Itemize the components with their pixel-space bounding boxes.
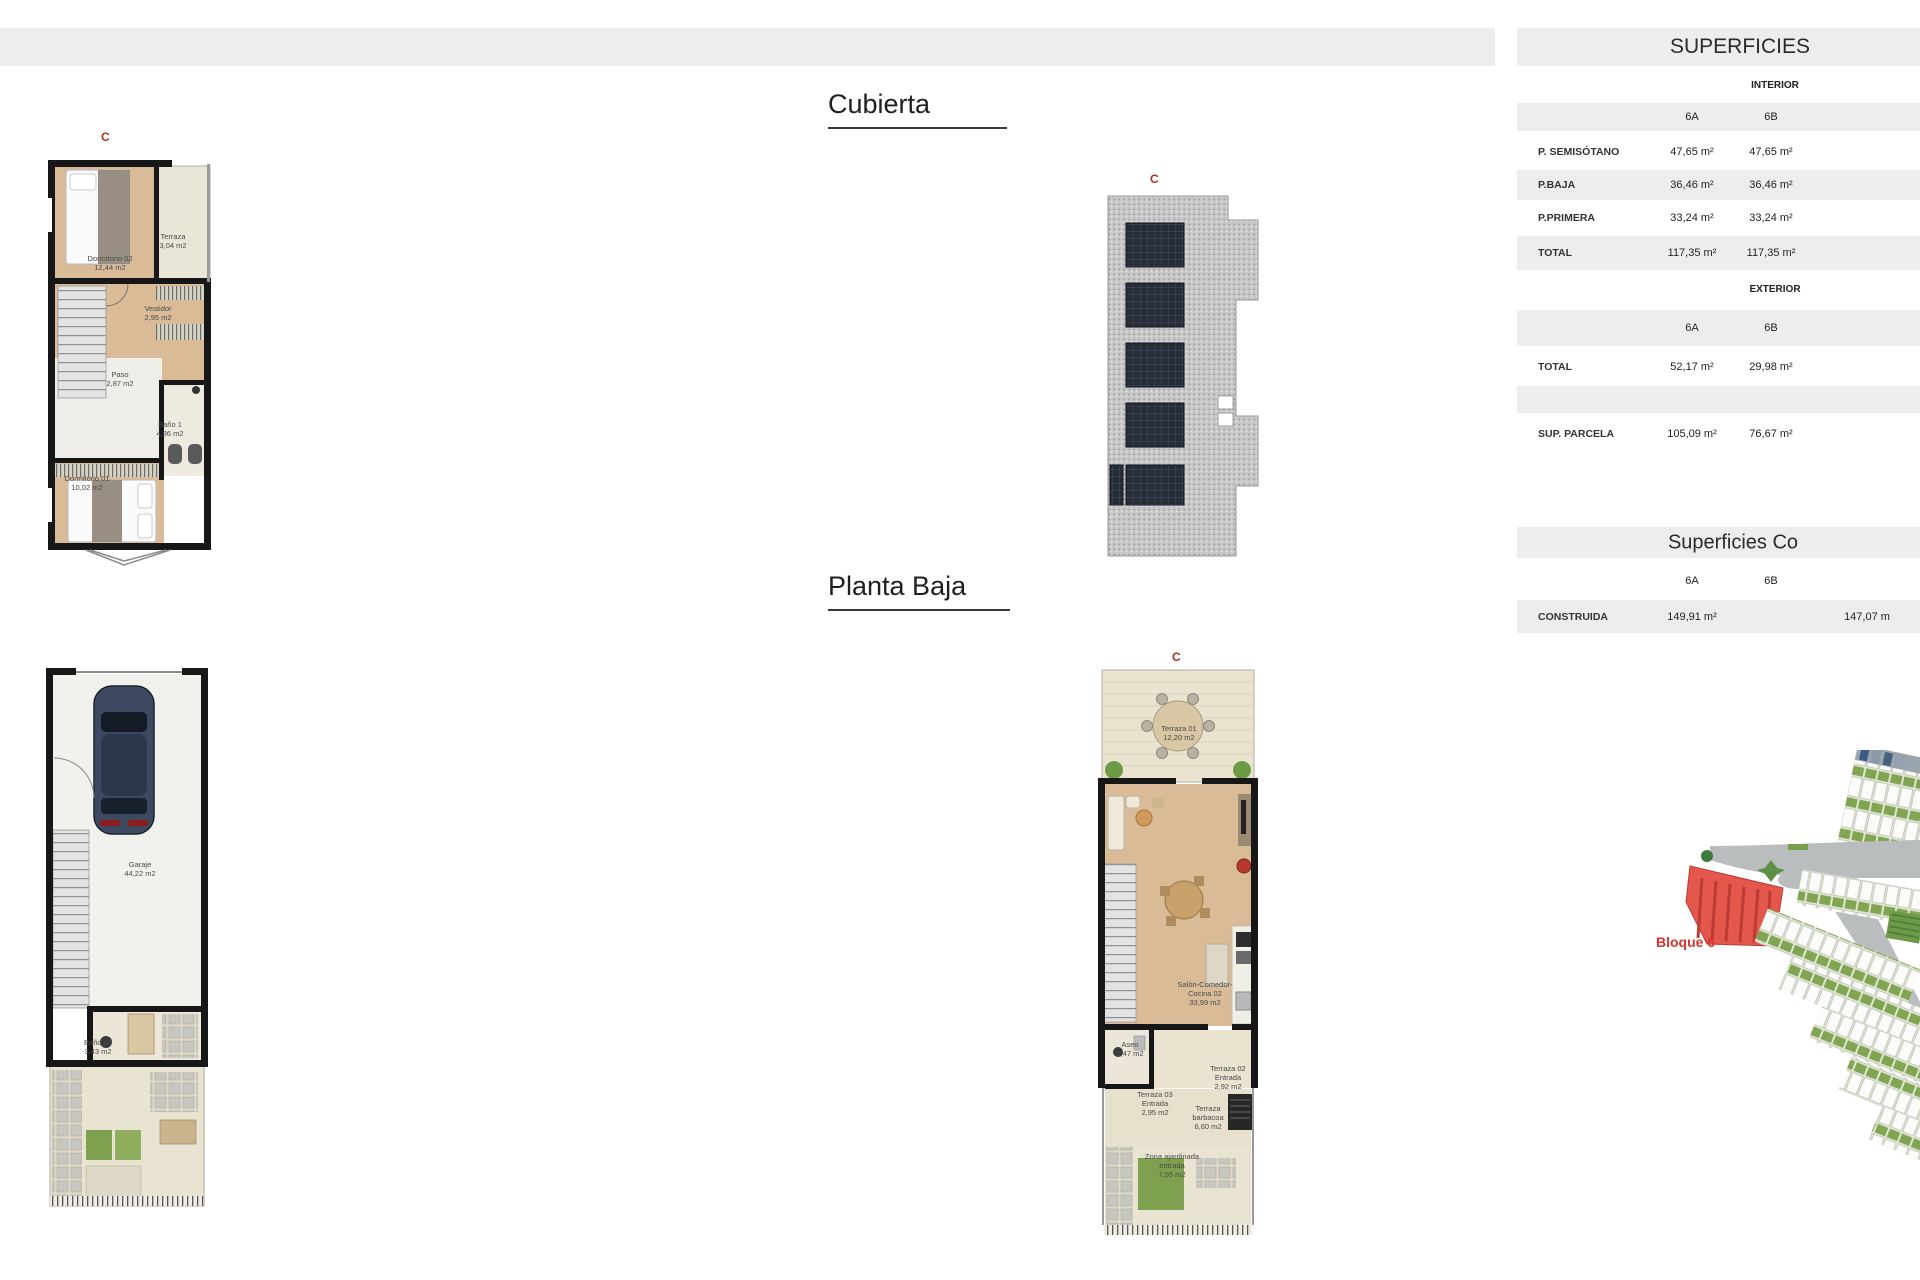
- grass-patch: [115, 1130, 141, 1160]
- col-6a: 6A: [1647, 322, 1737, 334]
- table-row: P.BAJA 36,46 m² 36,46 m²: [1517, 170, 1920, 200]
- interior-columns-row: 6A 6B: [1517, 103, 1920, 131]
- stairs: [1104, 864, 1136, 1022]
- garden-tiles: [1105, 1147, 1133, 1225]
- garage-door: [76, 671, 182, 673]
- window: [47, 488, 52, 522]
- room-label-dormitorio01: Dormitorio 0110,02 m2: [55, 474, 119, 492]
- top-band: [0, 28, 1495, 66]
- garden-paving: [1196, 1158, 1236, 1188]
- terraza-floor: [154, 166, 210, 280]
- table-row: P.PRIMERA 33,24 m² 33,24 m²: [1517, 203, 1920, 233]
- room-label-zona-ajardinada: Zona ajardinada entrada7,55 m2: [1142, 1152, 1202, 1179]
- room-label-terraza02: Terraza 02 Entrada2,92 m2: [1204, 1064, 1252, 1091]
- garden-tiles: [52, 1070, 82, 1202]
- room-label-salon: Salón-Comedor-Cocina 0233,99 m2: [1174, 980, 1236, 1007]
- garden-furniture: [160, 1120, 196, 1144]
- room-label-vestidor: Vestidor2,95 m2: [134, 304, 182, 322]
- title-planta-baja: Planta Baja: [828, 572, 1010, 611]
- col-6b: 6B: [1726, 575, 1816, 587]
- bbq: [1228, 1094, 1252, 1130]
- unit-c-marker: C: [101, 130, 110, 144]
- col-6b: 6B: [1726, 322, 1816, 334]
- unit-c-marker: C: [1172, 650, 1181, 664]
- exterior-columns-row: 6A 6B: [1517, 310, 1920, 346]
- stairs: [53, 830, 89, 1008]
- room-label-barbacoa: Terraza barbacoa6,60 m2: [1188, 1104, 1228, 1131]
- construidas-title: Superficies Co: [1648, 531, 1818, 554]
- plan-cubierta: C: [1098, 168, 1270, 570]
- col-6a: 6A: [1647, 111, 1737, 123]
- housing-cluster-lower: [1755, 908, 1920, 1205]
- garden-border: [1102, 1088, 1104, 1225]
- room-label-terraza01: Terraza 0112,20 m2: [1149, 724, 1209, 742]
- garden-paving: [150, 1072, 198, 1112]
- room-label-aseo: Aseo2,47 m2: [1108, 1040, 1152, 1058]
- bed-dormitorio02: [66, 170, 130, 264]
- table-row-empty: [1517, 386, 1920, 413]
- table-row: SUP. PARCELA 105,09 m² 76,67 m²: [1517, 417, 1920, 450]
- room-label-bano1: Baño 14,86 m2: [147, 420, 193, 438]
- wardrobe: [156, 286, 206, 300]
- plant: [1233, 761, 1251, 779]
- exterior-header: EXTERIOR: [1730, 284, 1820, 295]
- plan-sheet: { "titles": { "cubierta": "Cubierta", "p…: [0, 0, 1920, 1280]
- unit-c-marker: C: [1150, 172, 1159, 186]
- room-label-dormitorio02: Dormitorio 0212,44 m2: [74, 254, 146, 272]
- grass-patch: [86, 1130, 112, 1160]
- table-row: TOTAL 52,17 m² 29,98 m²: [1517, 351, 1920, 382]
- green-strip: [1788, 844, 1808, 850]
- plan-semisotano-drawing: [42, 662, 218, 1214]
- superficies-title-bar: SUPERFICIES: [1517, 28, 1920, 66]
- garden-border: [1252, 1088, 1254, 1225]
- plant: [1105, 761, 1123, 779]
- construidas-title-bar: Superficies Co: [1517, 527, 1920, 558]
- appliance: [1237, 859, 1251, 873]
- room-label-paso: Paso2,87 m2: [94, 370, 146, 388]
- room-label-garaje: Garaje44,22 m2: [108, 860, 172, 878]
- table-row: TOTAL 117,35 m² 117,35 m²: [1517, 236, 1920, 270]
- fence: [1104, 1225, 1252, 1235]
- table-row: P. SEMISÓTANO 47,65 m² 47,65 m²: [1517, 137, 1920, 167]
- car: [94, 686, 154, 834]
- plan-planta-primera: C: [44, 128, 220, 568]
- window: [47, 198, 52, 232]
- kitchen-counter: [1232, 926, 1254, 1024]
- col-6a: 6A: [1647, 575, 1737, 587]
- site-plan-drawing: [1650, 750, 1920, 1245]
- room-label-terraza: Terraza3,04 m2: [150, 232, 196, 250]
- terraza-rail: [207, 164, 210, 282]
- site-plan: Bloque 6: [1650, 750, 1920, 1245]
- plan-planta-primera-drawing: [44, 128, 220, 568]
- bloque6-label: Bloque 6: [1656, 934, 1715, 950]
- wardrobe: [156, 324, 206, 340]
- plan-cubierta-drawing: [1098, 168, 1270, 570]
- superficies-title: SUPERFICIES: [1660, 35, 1820, 59]
- interior-header: INTERIOR: [1730, 80, 1820, 91]
- room-label-bano01: Baño 013,43 m2: [70, 1038, 126, 1056]
- title-cubierta: Cubierta: [828, 90, 1007, 129]
- plan-semisotano: Garaje44,22 m2 Baño 013,43 m2: [42, 662, 218, 1214]
- col-6b: 6B: [1726, 111, 1816, 123]
- plan-planta-baja: C: [1092, 648, 1270, 1248]
- room-label-terraza03: Terraza 03 Entrada2,95 m2: [1131, 1090, 1179, 1117]
- fence: [50, 1196, 204, 1206]
- construidas-columns-row: 6A 6B: [1517, 566, 1920, 596]
- table-row: CONSTRUIDA 149,91 m² 147,07 m: [1517, 600, 1920, 633]
- green-field: [1886, 910, 1920, 943]
- bay-window: [86, 550, 170, 565]
- tree: [1701, 850, 1713, 862]
